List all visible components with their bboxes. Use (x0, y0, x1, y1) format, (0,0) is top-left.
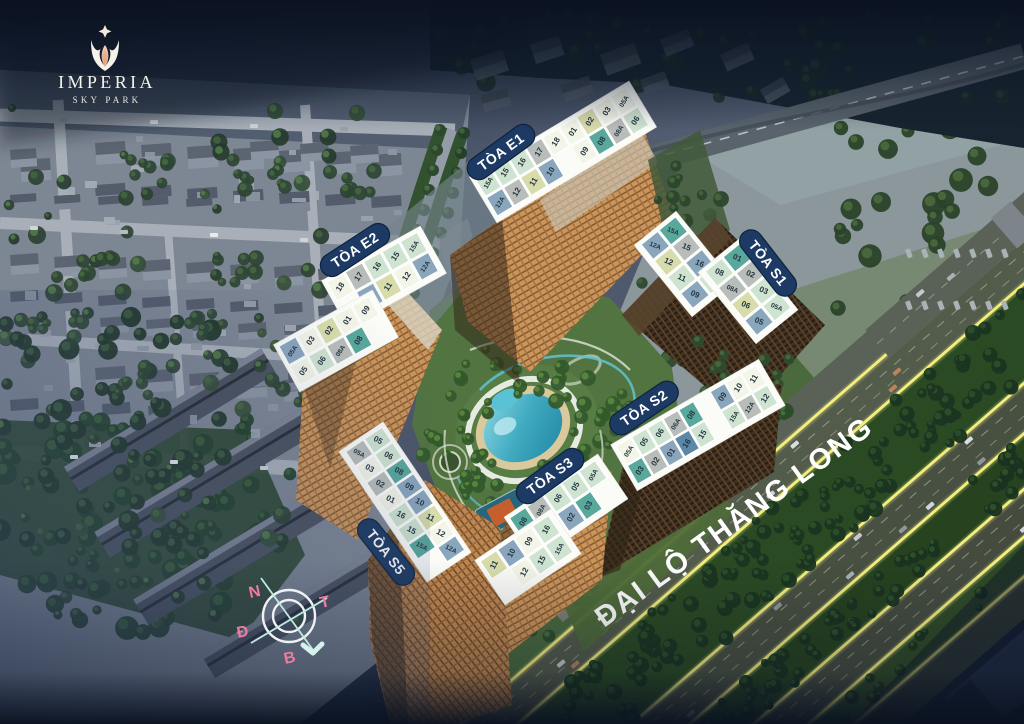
svg-text:IMPERIA: IMPERIA (58, 72, 156, 92)
svg-text:SKY PARK: SKY PARK (73, 95, 142, 105)
